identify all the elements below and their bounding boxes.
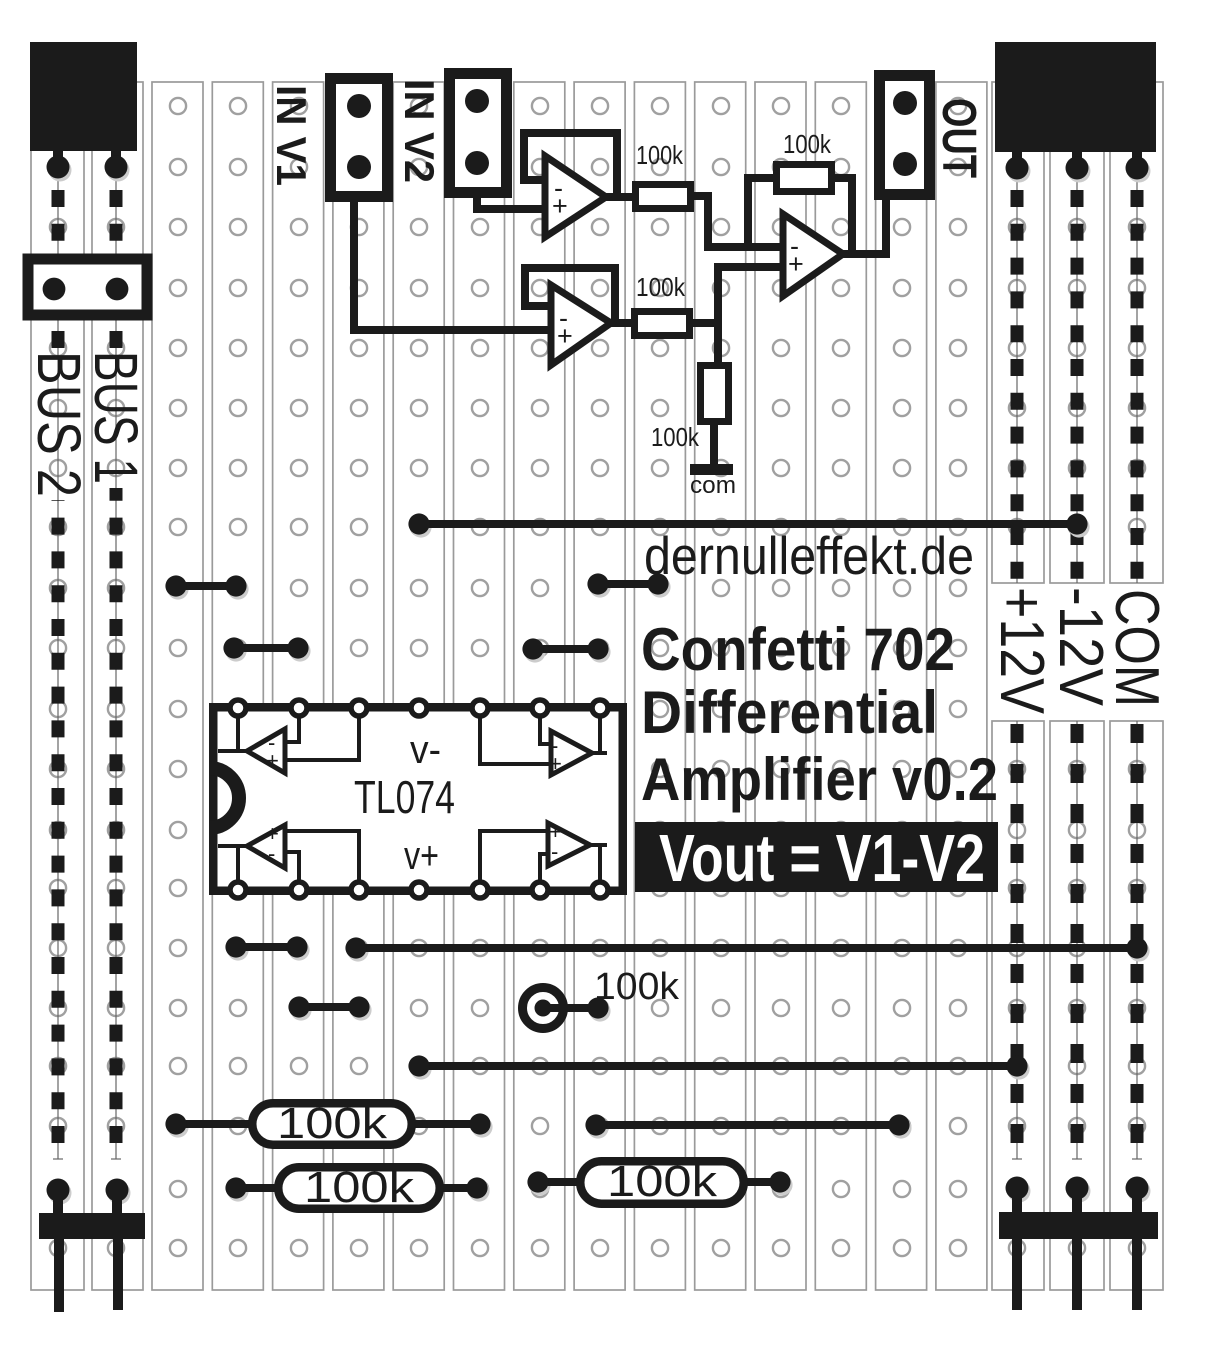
svg-text:TL074: TL074	[354, 771, 455, 823]
svg-text:100k: 100k	[783, 129, 832, 159]
svg-text:+12V: +12V	[987, 587, 1056, 715]
svg-text:OUT: OUT	[932, 98, 985, 178]
svg-text:Amplifier v0.2: Amplifier v0.2	[641, 746, 998, 813]
svg-text:-: -	[268, 841, 275, 866]
svg-text:IN V2: IN V2	[396, 79, 443, 183]
svg-text:100k: 100k	[277, 1099, 388, 1148]
svg-text:+: +	[552, 191, 568, 221]
svg-text:100k: 100k	[304, 1163, 415, 1212]
svg-text:100k: 100k	[651, 422, 700, 452]
svg-text:100k: 100k	[636, 140, 684, 170]
svg-text:+: +	[549, 751, 562, 776]
svg-text:Vout = V1-V2: Vout = V1-V2	[659, 821, 985, 896]
svg-text:+: +	[266, 748, 279, 773]
svg-text:v-: v-	[410, 728, 441, 772]
svg-text:com: com	[690, 472, 736, 499]
svg-text:v+: v+	[404, 834, 439, 878]
svg-text:Confetti 702: Confetti 702	[641, 616, 955, 683]
svg-text:100k: 100k	[607, 1157, 718, 1206]
svg-text:COM: COM	[1102, 589, 1171, 707]
svg-text:+: +	[557, 321, 573, 351]
svg-text:100k: 100k	[594, 966, 680, 1008]
svg-text:-: -	[551, 839, 558, 864]
svg-text:100k: 100k	[636, 272, 686, 302]
svg-text:dernulleffekt.de: dernulleffekt.de	[644, 527, 974, 586]
svg-text:BUS 2: BUS 2	[25, 351, 93, 497]
svg-text:+: +	[788, 249, 804, 279]
svg-text:Differential: Differential	[641, 679, 938, 746]
svg-text:IN V1: IN V1	[268, 85, 315, 186]
